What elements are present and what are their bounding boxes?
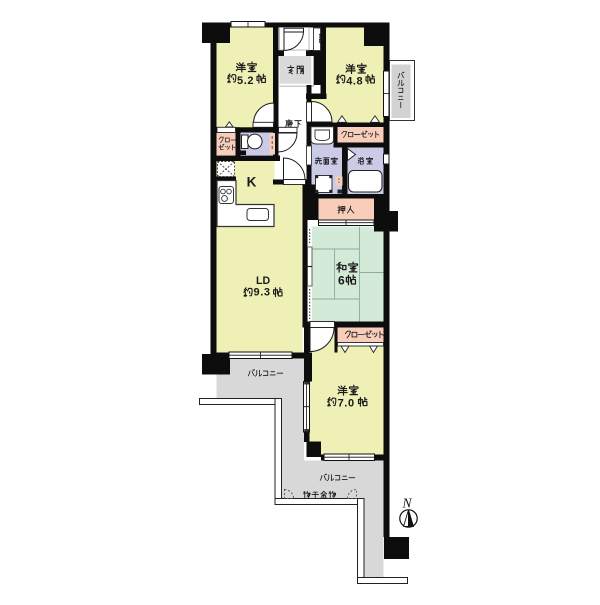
svg-text:5.2: 5.2 (237, 75, 254, 87)
svg-text:N: N (402, 496, 413, 511)
svg-text:4.8: 4.8 (346, 75, 363, 87)
svg-text:7.0: 7.0 (338, 397, 355, 409)
svg-text:LD: LD (256, 275, 270, 287)
svg-text:MB: MB (317, 34, 324, 44)
svg-text:K: K (247, 174, 257, 189)
svg-text:6: 6 (338, 273, 345, 287)
svg-text:9.3: 9.3 (254, 287, 271, 299)
